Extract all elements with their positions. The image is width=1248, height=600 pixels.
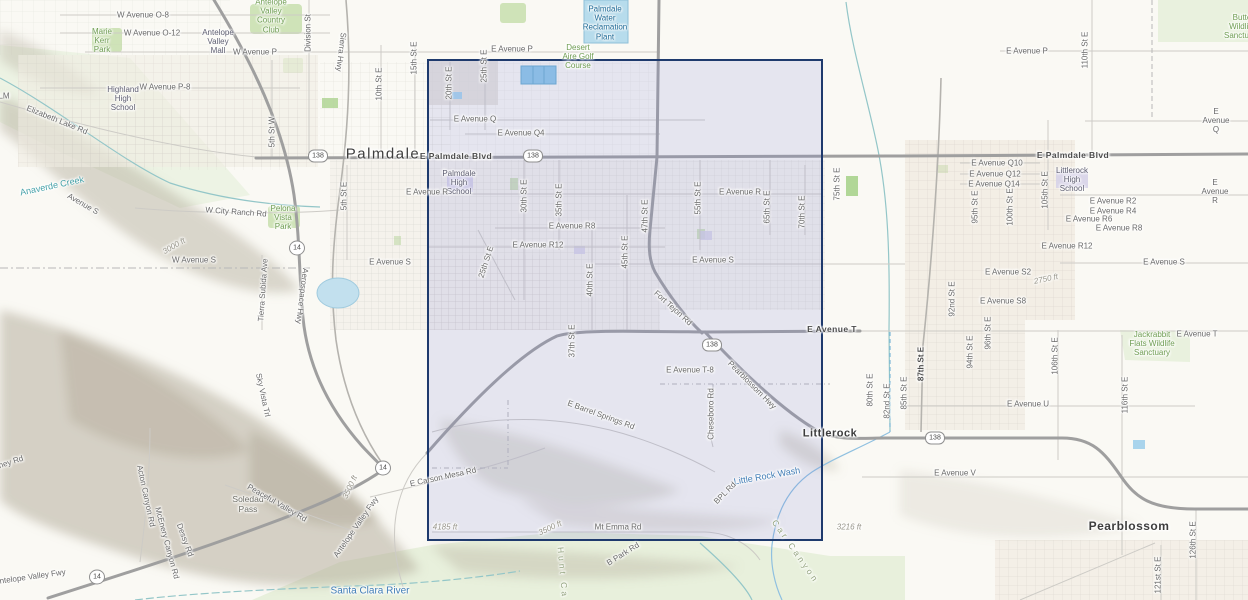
route-shield-14: 14 (289, 241, 305, 256)
route-shield-138: 138 (702, 339, 722, 352)
selection-rectangle[interactable] (427, 59, 823, 541)
route-shield-138: 138 (523, 150, 543, 163)
route-shield-14: 14 (375, 461, 391, 476)
topo-map-canvas[interactable]: W Avenue O-8W Avenue O-12Antelope Valley… (0, 0, 1248, 600)
route-shield-138: 138 (925, 432, 945, 445)
route-shield-138: 138 (308, 150, 328, 163)
route-shield-14: 14 (89, 570, 105, 585)
